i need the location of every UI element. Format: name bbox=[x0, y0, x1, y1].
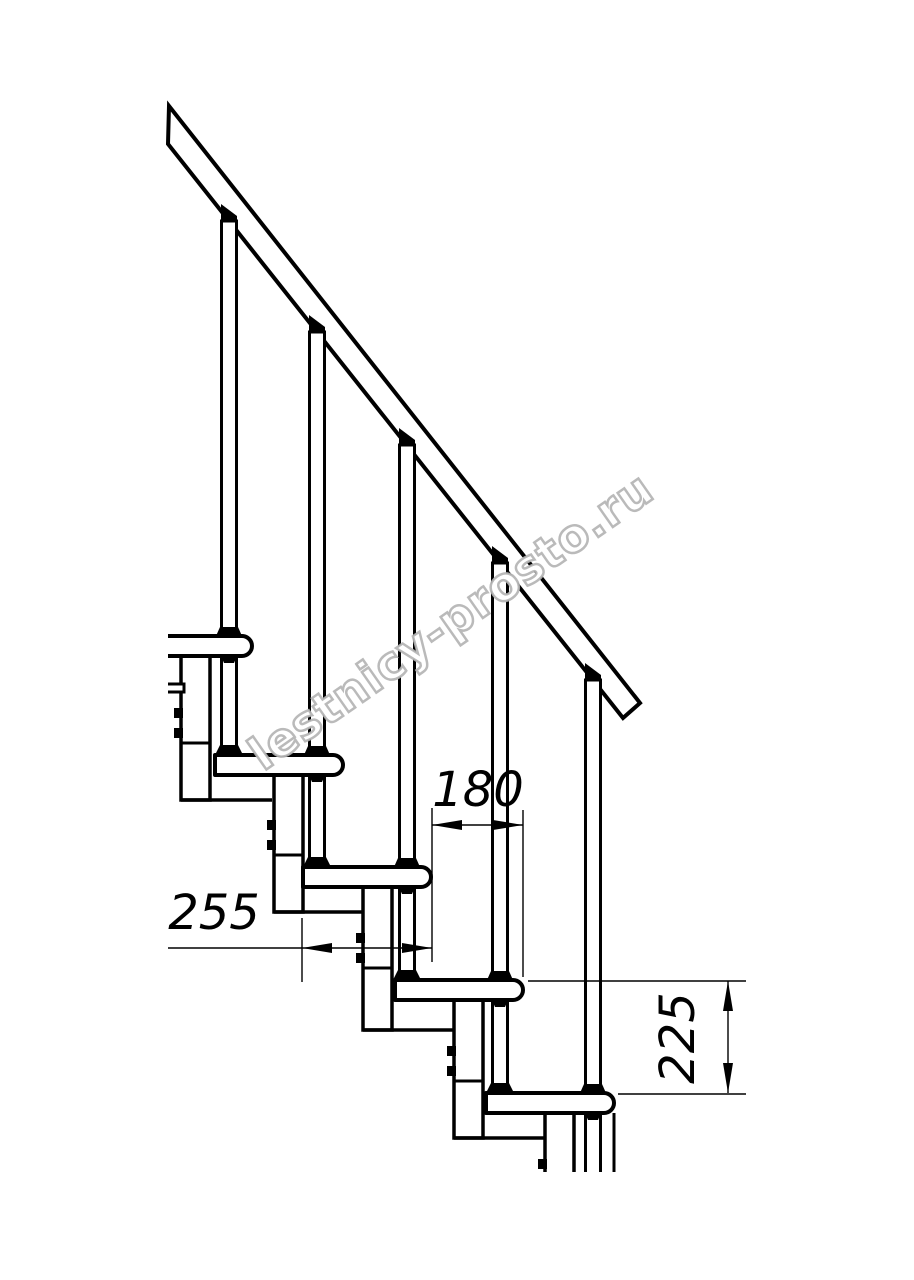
baluster-rod-segment bbox=[222, 656, 237, 755]
baluster-foot bbox=[393, 970, 421, 980]
baluster-rod-segment bbox=[400, 887, 415, 980]
dimension-arrow bbox=[723, 981, 733, 1011]
baluster-rod bbox=[222, 221, 237, 636]
bolt-head bbox=[538, 1159, 547, 1169]
dimension-arrow bbox=[302, 943, 332, 953]
tread bbox=[168, 636, 252, 656]
dimension-arrow bbox=[723, 1063, 733, 1093]
dimension-arrow bbox=[402, 943, 432, 953]
bolt-head bbox=[174, 728, 183, 738]
tread bbox=[486, 1093, 614, 1113]
support-box-body bbox=[363, 887, 392, 1030]
baluster-collar bbox=[216, 627, 242, 636]
baluster-under-nub bbox=[585, 1113, 601, 1120]
baluster-foot bbox=[215, 745, 243, 755]
staircase-technical-drawing: 180255225lestnicy-prosto.ru bbox=[0, 0, 914, 1280]
baluster-rod-segment bbox=[493, 1000, 508, 1093]
support-box-body bbox=[454, 1000, 483, 1138]
bolt-head bbox=[447, 1066, 456, 1076]
baluster-rod-segment bbox=[310, 775, 325, 867]
dimension-label: 225 bbox=[650, 992, 706, 1084]
baluster-lower-rod bbox=[586, 1113, 601, 1172]
baluster-lower-rod bbox=[310, 775, 325, 867]
bolt-head bbox=[267, 820, 276, 830]
dimension-label: 180 bbox=[432, 762, 524, 818]
dimension-arrow bbox=[432, 820, 462, 830]
baluster-foot bbox=[303, 857, 331, 867]
tread bbox=[395, 980, 523, 1000]
baluster-foot bbox=[486, 1083, 514, 1093]
bolt-head bbox=[174, 708, 183, 718]
bolt-head bbox=[447, 1046, 456, 1056]
baluster-collar bbox=[394, 858, 420, 867]
baluster-collar bbox=[487, 971, 513, 980]
support-box-body bbox=[274, 775, 303, 912]
tread bbox=[303, 867, 431, 887]
support-box-body bbox=[181, 656, 210, 800]
baluster-lower-rod bbox=[222, 656, 237, 755]
dimension-225: 225 bbox=[528, 981, 746, 1094]
bolt-head bbox=[356, 953, 365, 963]
baluster-collar bbox=[580, 1084, 606, 1093]
dimension-label: 255 bbox=[168, 885, 260, 941]
rear-attachment-tab bbox=[168, 684, 184, 692]
bolt-head bbox=[267, 840, 276, 850]
baluster-rod bbox=[586, 680, 601, 1093]
bolt-head bbox=[356, 933, 365, 943]
dimension-180: 180 bbox=[432, 762, 524, 977]
drawing-canvas: 180255225lestnicy-prosto.ru bbox=[0, 0, 914, 1280]
baluster-lower-rod bbox=[400, 887, 415, 980]
baluster-lower-rod bbox=[493, 1000, 508, 1093]
support-box bbox=[538, 1113, 574, 1172]
